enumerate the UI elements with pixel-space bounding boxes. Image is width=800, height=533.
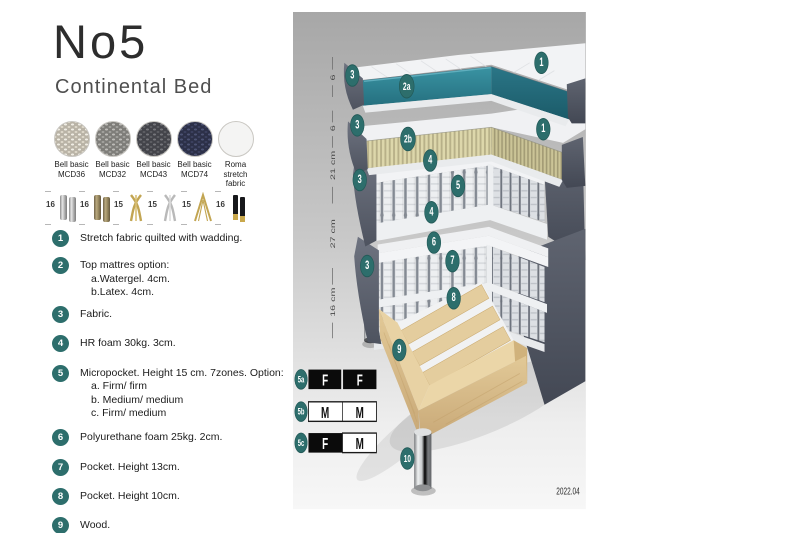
firmness-table: 5a F F 5b M M 5c F M — [295, 370, 377, 453]
spec-subtext: a. Firm/ firm — [80, 380, 284, 394]
fabric-swatch[interactable]: Bell basicMCD74 — [174, 121, 215, 189]
spec-item-4: 4 HR foam 30kg. 3cm. — [52, 335, 304, 352]
svg-text:3: 3 — [350, 69, 355, 82]
callout-1b: 1 — [536, 118, 550, 139]
callout-7: 7 — [446, 250, 460, 271]
firmness-cell: M — [321, 404, 329, 422]
svg-text:3: 3 — [365, 259, 370, 272]
fabric-name: Bell basic — [54, 160, 88, 170]
svg-text:1: 1 — [539, 56, 544, 69]
spec-item-5: 5 Micropocket. Height 15 cm. 7zones. Opt… — [52, 365, 304, 421]
spec-subtext: b.Latex. 4cm. — [80, 286, 170, 300]
spec-number-badge: 2 — [52, 257, 69, 274]
cylinder-bronze-leg-icon — [92, 192, 112, 224]
version-label: 2022.04 — [556, 485, 580, 497]
leg-option[interactable]: 16 — [45, 188, 79, 228]
spec-item-3: 3 Fabric. — [52, 306, 304, 323]
spec-text: Wood. — [80, 519, 110, 533]
spec-item-8: 8 Pocket. Height 10cm. — [52, 488, 304, 505]
spec-number-badge: 4 — [52, 335, 69, 352]
callout-10: 10 — [401, 448, 415, 469]
spec-number-badge: 8 — [52, 488, 69, 505]
page-subtitle: Continental Bed — [55, 76, 212, 99]
spec-text: Pocket. Height 13cm. — [80, 461, 180, 475]
callout-3b: 3 — [350, 115, 364, 136]
spec-text: Stretch fabric quilted with wadding. — [80, 232, 242, 246]
callout-4: 4 — [423, 150, 437, 171]
leg-option[interactable]: 15 — [181, 188, 215, 228]
fabric-name: Bell basic — [95, 160, 129, 170]
callout-6: 6 — [427, 232, 441, 253]
svg-text:8: 8 — [452, 292, 457, 305]
page-title: No5 — [53, 14, 148, 69]
spec-text: Polyurethane foam 25kg. 2cm. — [80, 431, 222, 445]
fabric-swatches: Bell basicMCD36 Bell basicMCD32 Bell bas… — [51, 121, 256, 189]
firmness-cell: F — [357, 371, 363, 389]
svg-text:10: 10 — [404, 452, 411, 464]
black-gold-tip-leg-icon — [230, 192, 248, 224]
fabric-code: MCD32 — [95, 170, 129, 180]
dimension-label: 21 cm — [329, 151, 337, 180]
product-sheet: { "header": { "title": "No5", "subtitle"… — [0, 0, 800, 533]
leg-height: 16 — [216, 200, 225, 209]
leg-height: 15 — [114, 200, 123, 209]
spec-item-1: 1 Stretch fabric quilted with wadding. — [52, 230, 304, 247]
dimension-label: 6 — [329, 74, 337, 80]
spec-subtext: c. Firm/ medium — [80, 407, 284, 421]
leg-option[interactable]: 16 — [215, 188, 249, 228]
spec-text: HR foam 30kg. 3cm. — [80, 337, 176, 351]
fabric-swatch-icon — [136, 121, 172, 157]
leg-height: 15 — [182, 200, 191, 209]
spec-number-badge: 6 — [52, 429, 69, 446]
spec-item-9: 9 Wood. — [52, 517, 304, 533]
cylinder-silver-leg-icon — [58, 192, 78, 224]
callout-5: 5 — [451, 175, 465, 196]
svg-text:9: 9 — [397, 343, 402, 356]
cross-gold-leg-icon — [126, 192, 146, 224]
svg-text:3: 3 — [355, 119, 360, 132]
fabric-swatch[interactable]: Bell basicMCD32 — [92, 121, 133, 189]
leg-height: 15 — [148, 200, 157, 209]
row-label: 5b — [298, 406, 305, 417]
firmness-cell: F — [322, 371, 328, 389]
callout-3: 3 — [346, 65, 360, 86]
spec-number-badge: 9 — [52, 517, 69, 533]
svg-text:2b: 2b — [404, 133, 412, 145]
fabric-code: MCD43 — [136, 170, 170, 180]
cross-silver-leg-icon — [160, 192, 180, 224]
svg-text:7: 7 — [450, 255, 455, 268]
leg-height: 16 — [80, 200, 89, 209]
spec-item-2: 2 Top mattres option: a.Watergel. 4cm. b… — [52, 257, 304, 300]
spec-list: 1 Stretch fabric quilted with wadding. 2… — [52, 230, 304, 533]
leg-height: 16 — [46, 200, 55, 209]
fabric-name: Bell basic — [136, 160, 170, 170]
fabric-end-latex — [562, 137, 585, 188]
firmness-cell: M — [356, 404, 364, 422]
fabric-swatch[interactable]: Bell basicMCD36 — [51, 121, 92, 189]
callout-1: 1 — [535, 52, 549, 73]
leg-options: 16 16 15 15 15 — [45, 188, 249, 228]
svg-text:4: 4 — [429, 206, 434, 219]
bed-cutaway-diagram: 6 6 21 cm 27 cm 16 cm — [293, 12, 767, 521]
spec-item-7: 7 Pocket. Height 13cm. — [52, 459, 304, 476]
dimension-label: 16 cm — [329, 288, 337, 317]
callout-8: 8 — [447, 288, 461, 309]
spec-item-6: 6 Polyurethane foam 25kg. 2cm. — [52, 429, 304, 446]
dimension-label: 27 cm — [329, 219, 337, 248]
fabric-code: stretch fabric — [215, 170, 256, 189]
spec-number-badge: 1 — [52, 230, 69, 247]
spec-subtext: b. Medium/ medium — [80, 394, 284, 408]
callout-4b: 4 — [425, 202, 439, 223]
fabric-swatch-icon — [95, 121, 131, 157]
fabric-swatch[interactable]: Bell basicMCD43 — [133, 121, 174, 189]
spec-number-badge: 3 — [52, 306, 69, 323]
callout-3d: 3 — [360, 255, 374, 276]
svg-text:5: 5 — [456, 179, 461, 192]
row-label: 5a — [298, 374, 305, 385]
callout-9: 9 — [392, 339, 406, 360]
svg-text:6: 6 — [432, 236, 437, 249]
leg-option[interactable]: 15 — [147, 188, 181, 228]
fabric-name: Roma — [215, 160, 256, 170]
fabric-swatch-icon — [177, 121, 213, 157]
spec-text: Top mattres option: — [80, 259, 170, 273]
svg-text:4: 4 — [428, 154, 433, 167]
spec-number-badge: 5 — [52, 365, 69, 382]
leg-option[interactable]: 16 — [79, 188, 113, 228]
fabric-code: MCD74 — [177, 170, 211, 180]
svg-text:2a: 2a — [403, 80, 411, 92]
spec-text: Micropocket. Height 15 cm. 7zones. Optio… — [80, 367, 284, 381]
spec-text: Pocket. Height 10cm. — [80, 490, 180, 504]
fabric-swatch-icon — [218, 121, 254, 157]
leg-option[interactable]: 15 — [113, 188, 147, 228]
firmness-cell: F — [322, 435, 328, 453]
firmness-cell: M — [356, 435, 364, 453]
row-label: 5c — [298, 437, 305, 448]
dimension-label: 6 — [329, 125, 337, 131]
fabric-end-top — [567, 78, 586, 123]
callout-3c: 3 — [353, 169, 367, 190]
hairpin-gold-leg-icon — [192, 192, 214, 224]
spec-number-badge: 7 — [52, 459, 69, 476]
svg-text:1: 1 — [541, 123, 546, 136]
spec-text: Fabric. — [80, 308, 112, 322]
callout-2a: 2a — [399, 75, 414, 98]
spec-subtext: a.Watergel. 4cm. — [80, 273, 170, 287]
fabric-swatch-icon — [54, 121, 90, 157]
callout-2b: 2b — [401, 127, 416, 150]
fabric-code: MCD36 — [54, 170, 88, 180]
fabric-name: Bell basic — [177, 160, 211, 170]
svg-text:3: 3 — [358, 173, 363, 186]
fabric-swatch[interactable]: Romastretch fabric — [215, 121, 256, 189]
